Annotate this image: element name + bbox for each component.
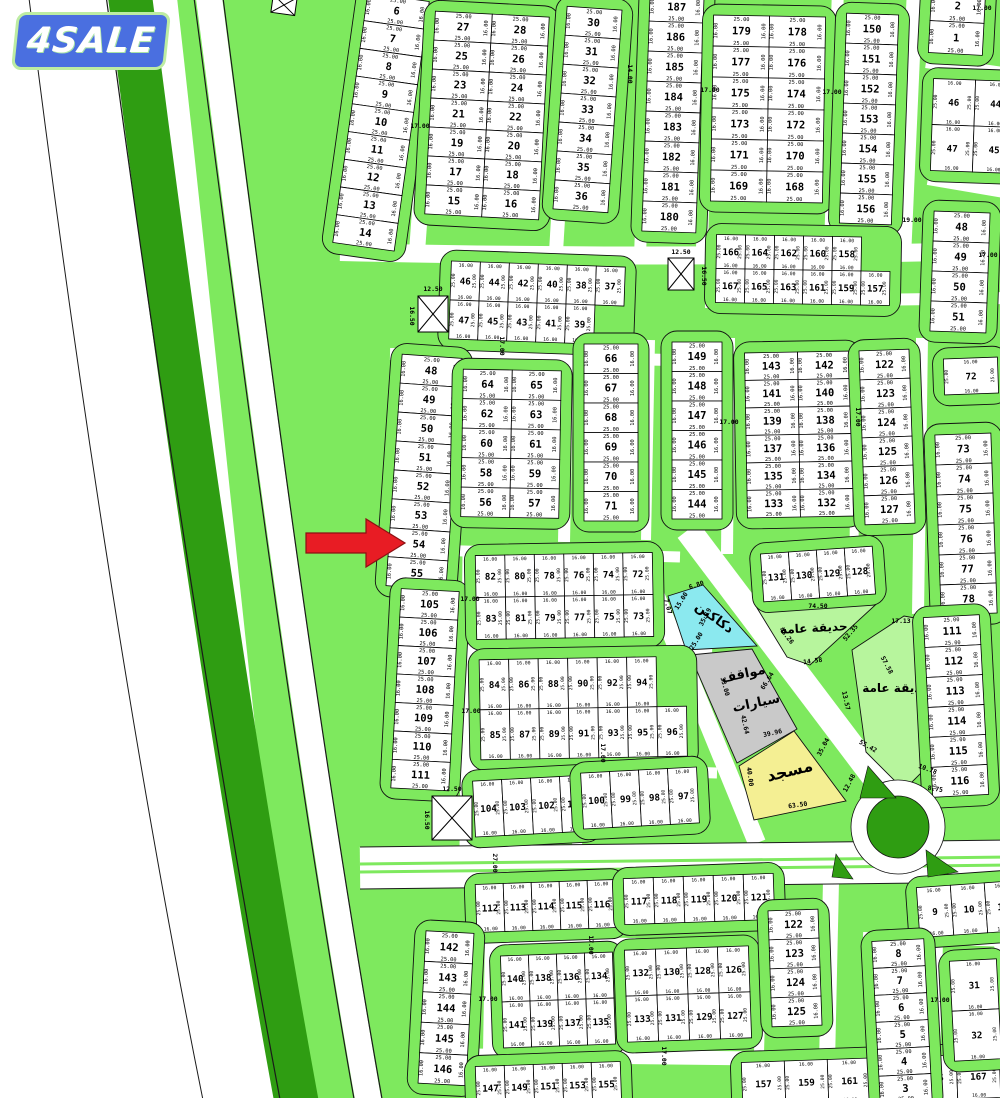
plot-dim: 25.00 [763, 354, 779, 360]
plot-dim: 25.00 [574, 183, 590, 190]
plot-dim: 16.00 [459, 263, 473, 269]
plot-dim: 16.00 [643, 178, 650, 194]
plot-132: 13216.0016.0025.0025.00 [624, 949, 657, 996]
plot-123: 12325.0025.0016.0016.00 [769, 938, 820, 969]
block-row-157-167: 16616.0016.0025.0025.0016416.0016.0025.0… [704, 223, 902, 316]
plot-dim: 25.00 [451, 101, 467, 108]
plot-number: 5 [899, 1029, 906, 1041]
plot-96: 9616.0016.0025.0025.00 [657, 706, 687, 757]
plot-dim: 16.00 [450, 598, 457, 614]
plot-dim: 25.00 [577, 969, 583, 983]
plot-dim: 25.00 [689, 461, 705, 467]
plot-137: 13716.0016.0025.0025.00 [558, 999, 588, 1046]
plot-dim: 16.00 [971, 1054, 986, 1061]
plot-dim: 16.00 [393, 737, 400, 753]
plot-dim: 25.00 [566, 277, 572, 291]
plot-dim: 25.00 [477, 511, 493, 517]
plot-dim: 16.00 [553, 377, 559, 393]
plot-number: 31 [968, 980, 980, 992]
plot-number: 21 [452, 108, 465, 121]
plot-number: 164 [751, 247, 768, 258]
plot-dim: 25.00 [824, 246, 830, 260]
plot-146: 14625.0025.0016.0016.00 [418, 1053, 468, 1086]
plot-number: 23 [453, 79, 466, 92]
plot-dim: 25.00 [832, 280, 838, 294]
plot-47: 4716.0016.0025.0025.00 [930, 125, 974, 173]
plot-dim: 16.00 [863, 473, 870, 489]
plot-dim: 16.00 [693, 60, 700, 76]
road-width-label: 17.00 [700, 86, 719, 94]
plot-number: 138 [816, 415, 835, 427]
plot-number: 2 [954, 0, 961, 12]
plot-dim: 25.00 [891, 968, 907, 975]
plot-dim: 25.00 [557, 970, 563, 984]
plot-dim: 16.00 [931, 278, 938, 294]
plot-number: 78 [544, 571, 555, 582]
plot-dim: 25.00 [552, 898, 558, 912]
plot-number: 26 [512, 53, 525, 66]
plot-dim: 16.00 [486, 303, 500, 309]
road-width-label: 12.50 [423, 285, 442, 293]
plot-dim: 25.00 [437, 1024, 453, 1031]
plot-64: 6425.0025.0016.0016.00 [463, 369, 513, 400]
plot-dim: 16.00 [573, 306, 587, 312]
plot-dim: 16.00 [632, 631, 646, 637]
plot-number: 151 [861, 53, 880, 66]
plot-dim: 25.00 [603, 345, 619, 351]
plot-dim: 25.00 [565, 610, 571, 624]
plot-number: 30 [587, 17, 600, 30]
plot-dim: 25.00 [785, 1076, 791, 1090]
plot-dim: 16.00 [534, 139, 541, 155]
plot-number: 161 [841, 1076, 858, 1088]
plot-dim: 16.00 [418, 1060, 425, 1076]
plot-dim: 16.00 [875, 1001, 882, 1017]
plot-dim: 25.00 [712, 1009, 718, 1023]
plot-125: 12525.0025.0016.0016.00 [862, 436, 913, 467]
plot-19: 1925.0025.0016.0016.00 [428, 127, 486, 159]
plot-122: 12225.0025.0016.0016.00 [768, 909, 819, 940]
plot-number: 117 [631, 896, 648, 908]
plot-dim: 16.00 [887, 112, 894, 128]
plot-dim: 25.00 [420, 415, 436, 422]
plot-dim: 25.00 [837, 565, 844, 580]
utility-xbox [432, 796, 472, 840]
plot-dim: 25.00 [788, 111, 804, 117]
plot-31: 3125.0025.0016.0016.00 [563, 35, 620, 68]
plot-58: 5825.0025.0016.0016.00 [461, 458, 511, 489]
plot-153: 15325.0025.0016.0016.00 [842, 103, 895, 135]
plot-dim: 16.00 [799, 413, 805, 429]
plot-dim: 16.00 [667, 1035, 681, 1041]
plot-130: 13016.0016.0025.0025.00 [788, 550, 819, 600]
plot-66: 6625.0025.0016.0016.00 [584, 344, 638, 374]
plot-80: 8016.0016.0025.0025.00 [505, 555, 535, 598]
plot-dim: 16.00 [557, 129, 564, 145]
plot-number: 87 [519, 729, 530, 740]
plot-dim: 16.00 [630, 380, 636, 396]
plot-dim: 16.00 [584, 380, 590, 396]
plot-dim: 16.00 [693, 916, 707, 922]
block-row-84-96: 8416.0016.0025.0025.008616.0016.0025.002… [468, 645, 699, 771]
plot-dim: 25.00 [530, 677, 536, 691]
plot-57: 5725.0025.0016.0016.00 [510, 488, 560, 519]
plot-dim: 25.00 [414, 502, 430, 509]
plot-dim: 25.00 [529, 372, 545, 378]
plot-dim: 16.00 [973, 652, 980, 668]
plot-number: 28 [513, 24, 526, 37]
plot-dim: 25.00 [528, 315, 534, 329]
plot-number: 58 [480, 467, 493, 479]
plot-108: 10825.0025.0016.0016.00 [395, 674, 454, 706]
plot-142: 14225.0025.0016.0016.00 [798, 351, 851, 380]
plot-dim: 16.00 [513, 598, 527, 604]
plot-dim: 16.00 [608, 74, 615, 90]
plot-1: 125.0025.0016.0016.00 [928, 21, 984, 56]
plot-dim: 25.00 [952, 903, 959, 918]
plot-dim: 16.00 [594, 881, 608, 887]
plot-84: 8416.0016.0025.0025.00 [479, 659, 509, 710]
plot-dim: 25.00 [422, 386, 438, 393]
plot-123: 12325.0025.0016.0016.00 [860, 378, 911, 409]
plot-dim: 16.00 [420, 1029, 427, 1045]
plot-number: 131 [665, 1013, 682, 1025]
plot-dim: 16.00 [810, 272, 824, 278]
plot-number: 14 [358, 226, 372, 240]
plot-134: 13416.0016.0025.0025.00 [584, 952, 614, 999]
plot-dim: 25.00 [474, 802, 481, 817]
block-col-105-111: 10525.0025.0016.0016.0010625.0025.0016.0… [379, 577, 470, 802]
plot-111: 11125.0025.0016.0016.00 [923, 615, 981, 648]
plot-number: 99 [620, 794, 632, 806]
plot-number: 145 [688, 469, 707, 481]
plot-dim: 16.00 [663, 917, 677, 923]
plot-dim: 16.00 [425, 938, 432, 954]
plot-dim: 16.00 [606, 709, 620, 715]
plot-dim: 25.00 [450, 273, 456, 287]
plot-dim: 25.00 [414, 733, 430, 740]
plot-dim: 25.00 [559, 1016, 565, 1030]
plot-dim: 25.00 [616, 609, 622, 623]
plot-dim: 16.00 [593, 1000, 607, 1006]
plot-dim: 16.00 [767, 148, 773, 164]
plot-dim: 25.00 [741, 962, 747, 976]
plot-dim: 16.00 [396, 680, 403, 696]
plot-77: 7716.0016.0025.0025.00 [565, 595, 595, 638]
plot-49: 4925.0025.0016.0016.00 [398, 383, 460, 417]
plot-dim: 25.00 [669, 789, 676, 804]
plot-dim: 25.00 [819, 490, 835, 496]
plot-dim: 25.00 [744, 890, 750, 904]
plot-dim: 16.00 [963, 359, 977, 365]
plot-dim: 25.00 [479, 677, 485, 691]
plot-dim: 16.00 [547, 710, 561, 716]
plot-165: 16516.0016.0025.0025.00 [744, 269, 774, 304]
plot-88: 8816.0016.0025.0025.00 [538, 658, 568, 709]
plot-100: 10016.0016.0025.0025.00 [581, 772, 613, 830]
plot-dim: 16.00 [538, 778, 553, 785]
plot-8: 825.0025.0016.0016.00 [872, 939, 925, 969]
plot-dim: 16.00 [547, 753, 561, 759]
plot-132: 13225.0025.0016.0016.00 [800, 489, 853, 518]
plot-dim: 25.00 [861, 105, 877, 112]
plot-number: 162 [780, 248, 797, 259]
plot-dim: 25.00 [894, 1022, 910, 1029]
plot-157: 15716.0016.0025.0025.00 [741, 1061, 786, 1098]
plot-25: 2525.0025.0016.0016.00 [432, 40, 490, 72]
road-width-label: 17.00 [660, 1046, 668, 1065]
road-width-label: 14.00 [626, 64, 634, 83]
plot-dim: 16.00 [714, 467, 720, 483]
plot-dim: 25.00 [654, 893, 660, 907]
plot-dim: 16.00 [535, 956, 549, 962]
plot-number: 154 [858, 143, 877, 156]
plot-dim: 25.00 [890, 941, 906, 948]
plot-91: 9116.0016.0025.0025.00 [569, 708, 599, 759]
plot-dim: 16.00 [620, 821, 635, 828]
plot-dim: 16.00 [756, 1063, 770, 1069]
plot-number: 141 [762, 388, 781, 400]
plot-dim: 16.00 [630, 410, 636, 426]
plot-dim: 16.00 [423, 969, 430, 985]
plot-dim: 25.00 [690, 788, 697, 803]
plot-164: 16416.0016.0025.0025.00 [745, 235, 775, 270]
plot-dim: 25.00 [434, 1078, 450, 1085]
plot-59: 5925.0025.0016.0016.00 [510, 458, 560, 489]
plot-dim: 16.00 [839, 272, 853, 278]
road-width-label: 17.00 [498, 336, 506, 355]
plot-dim: 16.00 [986, 530, 993, 546]
plot-dim: 16.00 [761, 23, 767, 39]
plot-number: 17 [449, 166, 462, 179]
plot-dim: 16.00 [800, 468, 806, 484]
plot-number: 181 [661, 181, 680, 194]
plot-number: 71 [605, 501, 618, 513]
plot-171: 17125.0025.0016.0016.00 [711, 139, 768, 171]
plot-dim: 25.00 [524, 899, 530, 913]
plot-178: 17825.0025.0016.0016.00 [769, 16, 826, 48]
plot-number: 27 [456, 21, 469, 34]
plot-dim: 16.00 [394, 709, 401, 725]
plot-number: 42 [517, 278, 528, 289]
plot-dim: 16.00 [390, 505, 397, 521]
plot-82: 8216.0016.0025.0025.00 [475, 555, 505, 598]
plot-dim: 16.00 [562, 71, 569, 87]
plot-dim: 25.00 [664, 143, 680, 150]
plot-dim: 25.00 [661, 789, 668, 804]
plot-dim: 25.00 [417, 677, 433, 684]
plot-dim: 16.00 [391, 766, 398, 782]
plot-number: 161 [809, 283, 826, 294]
plot-dim: 16.00 [537, 81, 544, 97]
plot-number: 155 [598, 1079, 615, 1091]
plot-dim: 25.00 [646, 893, 652, 907]
plot-dim: 25.00 [824, 280, 830, 294]
plot-dim: 25.00 [419, 648, 435, 655]
plot-dim: 16.00 [932, 248, 939, 264]
plot-dim: 16.00 [989, 82, 1000, 88]
plot-dim: 25.00 [528, 401, 544, 407]
plot-number: 10 [374, 116, 388, 130]
plot-dim: 16.00 [726, 948, 740, 954]
plot-dim: 25.00 [510, 727, 516, 741]
plot-dim: 16.00 [984, 470, 991, 486]
plot-dim: 25.00 [743, 1008, 749, 1022]
plot-number: 4 [901, 1056, 908, 1068]
plot-dim: 16.00 [926, 887, 941, 894]
block-se-col-3-8: 825.0025.0016.0016.00725.0025.0016.0016.… [860, 927, 944, 1098]
plot-dim: 25.00 [774, 245, 780, 259]
plot-dim: 25.00 [557, 316, 563, 330]
plot-dim: 25.00 [764, 409, 780, 415]
plot-dim: 16.00 [532, 168, 539, 184]
plot-dim: 25.00 [506, 611, 512, 625]
plot-dim: 16.00 [555, 157, 562, 173]
plot-dim: 16.00 [487, 661, 501, 667]
road-width-label: 17.00 [461, 707, 480, 715]
plot-dim: 16.00 [515, 304, 529, 310]
plot-dim: 16.00 [905, 472, 912, 488]
plot-dim: 16.00 [890, 22, 897, 38]
plot-137: 13725.0025.0016.0016.00 [746, 435, 799, 464]
plot-number: 147 [482, 1083, 499, 1095]
plot-number: 119 [691, 894, 708, 906]
plot-dim: 25.00 [882, 518, 898, 525]
plot-dim: 16.00 [812, 974, 819, 990]
plot-dim: 16.00 [665, 708, 679, 714]
plot-dim: 25.00 [565, 316, 571, 330]
plot-dim: 25.00 [786, 940, 802, 947]
plot-160: 16016.0016.0025.0025.00 [803, 236, 833, 271]
plot-dim: 16.00 [729, 1033, 743, 1039]
plot-number: 51 [418, 452, 431, 465]
plot-dim: 25.00 [561, 726, 567, 740]
plot-number: 124 [786, 977, 805, 990]
plot-dim: 16.00 [599, 1063, 613, 1069]
plot-dim: 16.00 [635, 997, 649, 1003]
road-width-label: 17.00 [822, 88, 841, 96]
plot-dim: 16.00 [800, 495, 806, 511]
plot-dim: 25.00 [478, 489, 494, 495]
plot-dim: 25.00 [644, 566, 650, 580]
plot-dim: 16.00 [511, 406, 517, 422]
plot-dim: 25.00 [536, 315, 542, 329]
road-width-label: 12.50 [671, 248, 690, 256]
plot-dim: 25.00 [952, 273, 968, 280]
plot-number: 34 [579, 132, 592, 145]
plot-dim: 16.00 [664, 950, 678, 956]
plot-133: 13316.0016.0025.0025.00 [626, 995, 659, 1042]
plot-number: 16 [504, 198, 517, 211]
plot-141: 14116.0016.0025.0025.00 [502, 1001, 532, 1048]
plot-dim: 16.00 [841, 170, 848, 186]
plot-number: 32 [971, 1030, 983, 1042]
plot-dim: 25.00 [861, 281, 867, 295]
plot-dim: 25.00 [506, 132, 522, 139]
plot-number: 168 [785, 181, 804, 193]
plot-dim: 16.00 [983, 440, 990, 456]
plot-dim: 25.00 [766, 279, 772, 293]
road-width-label: 17.00 [854, 407, 862, 426]
plot-dim: 16.00 [636, 751, 650, 757]
plot-50: 5025.0025.0016.0016.00 [396, 412, 458, 446]
plot-dim: 16.00 [782, 237, 796, 243]
block-row-72-83: 8216.0016.0025.0025.008016.0016.0025.002… [464, 541, 665, 650]
plot-dim: 25.00 [529, 276, 535, 290]
plot-dim: 16.00 [483, 830, 498, 837]
plot-dim: 16.00 [488, 264, 502, 270]
plot-number: 81 [515, 613, 527, 624]
plot-dim: 25.00 [766, 245, 772, 259]
plot-dim: 25.00 [560, 676, 566, 690]
plot-dim: 25.00 [555, 1078, 561, 1092]
plot-65: 6525.0025.0016.0016.00 [512, 370, 562, 401]
plot-dim: 25.00 [579, 1015, 585, 1029]
plot-85: 8516.0016.0025.0025.00 [480, 709, 510, 760]
plot-dim: 16.00 [649, 0, 656, 14]
plot-dim: 25.00 [689, 402, 705, 408]
plot-dim: 25.00 [505, 569, 511, 583]
plot-dim: 16.00 [672, 378, 678, 394]
plot-dim: 25.00 [860, 135, 876, 142]
plot-dim: 16.00 [665, 751, 679, 757]
plot-dim: 16.00 [886, 142, 893, 158]
plot-dim: 16.00 [552, 436, 558, 452]
plot-dim: 25.00 [603, 427, 619, 433]
plot-number: 60 [480, 438, 493, 450]
plot-dim: 25.00 [689, 513, 705, 519]
plot-dim: 25.00 [960, 585, 976, 592]
plot-dim: 16.00 [512, 556, 526, 562]
plot-dim: 16.00 [634, 658, 648, 664]
plot-dim: 16.00 [714, 378, 720, 394]
plot-dim: 16.00 [768, 86, 774, 102]
plot-72: 7216.0016.0025.0025.00 [623, 552, 653, 595]
plot-number: 10 [963, 904, 975, 916]
plot-dim: 25.00 [706, 891, 712, 905]
plot-159: 15916.0016.0025.0025.00 [831, 271, 861, 306]
plot-dim: 16.00 [465, 940, 472, 956]
plot-dim: 25.00 [532, 798, 539, 813]
plot-dim: 25.00 [668, 23, 684, 30]
plot-dim: 25.00 [992, 1027, 999, 1042]
plot-dim: 16.00 [795, 552, 810, 559]
plot-dim: 25.00 [446, 187, 462, 194]
plot-dim: 25.00 [820, 1074, 826, 1088]
plot-dim: 16.00 [975, 682, 982, 698]
plot-dim: 16.00 [666, 996, 680, 1002]
plot-number: 137 [763, 443, 782, 455]
road-width-label: 17.00 [478, 995, 497, 1003]
block-cell-72: 7216.0016.0025.0025.00 [932, 346, 1000, 407]
plot-dim: 16.00 [431, 76, 438, 92]
plot-number: 20 [507, 140, 520, 153]
plot-dim: 16.00 [661, 878, 675, 884]
plot-dim: 16.00 [517, 710, 531, 716]
plot-dim: 25.00 [511, 46, 527, 53]
plot-dim: 25.00 [667, 53, 683, 60]
plot-dim: 16.00 [604, 268, 618, 274]
plot-dim: 16.00 [930, 308, 937, 324]
plot-number: 50 [953, 281, 966, 293]
plot-dim: 25.00 [896, 1049, 912, 1056]
plot-dim: 16.00 [860, 386, 867, 402]
plot-dim: 16.00 [839, 299, 853, 305]
plot-63: 6325.0025.0016.0016.00 [511, 400, 561, 431]
block-brow-147-155: 14716.0016.0025.0025.0014916.0016.0025.0… [464, 1050, 633, 1098]
plot-number: 94 [636, 677, 648, 688]
block-top-grid-15-28: 2725.0025.0016.0016.002825.0025.0016.001… [413, 0, 561, 231]
